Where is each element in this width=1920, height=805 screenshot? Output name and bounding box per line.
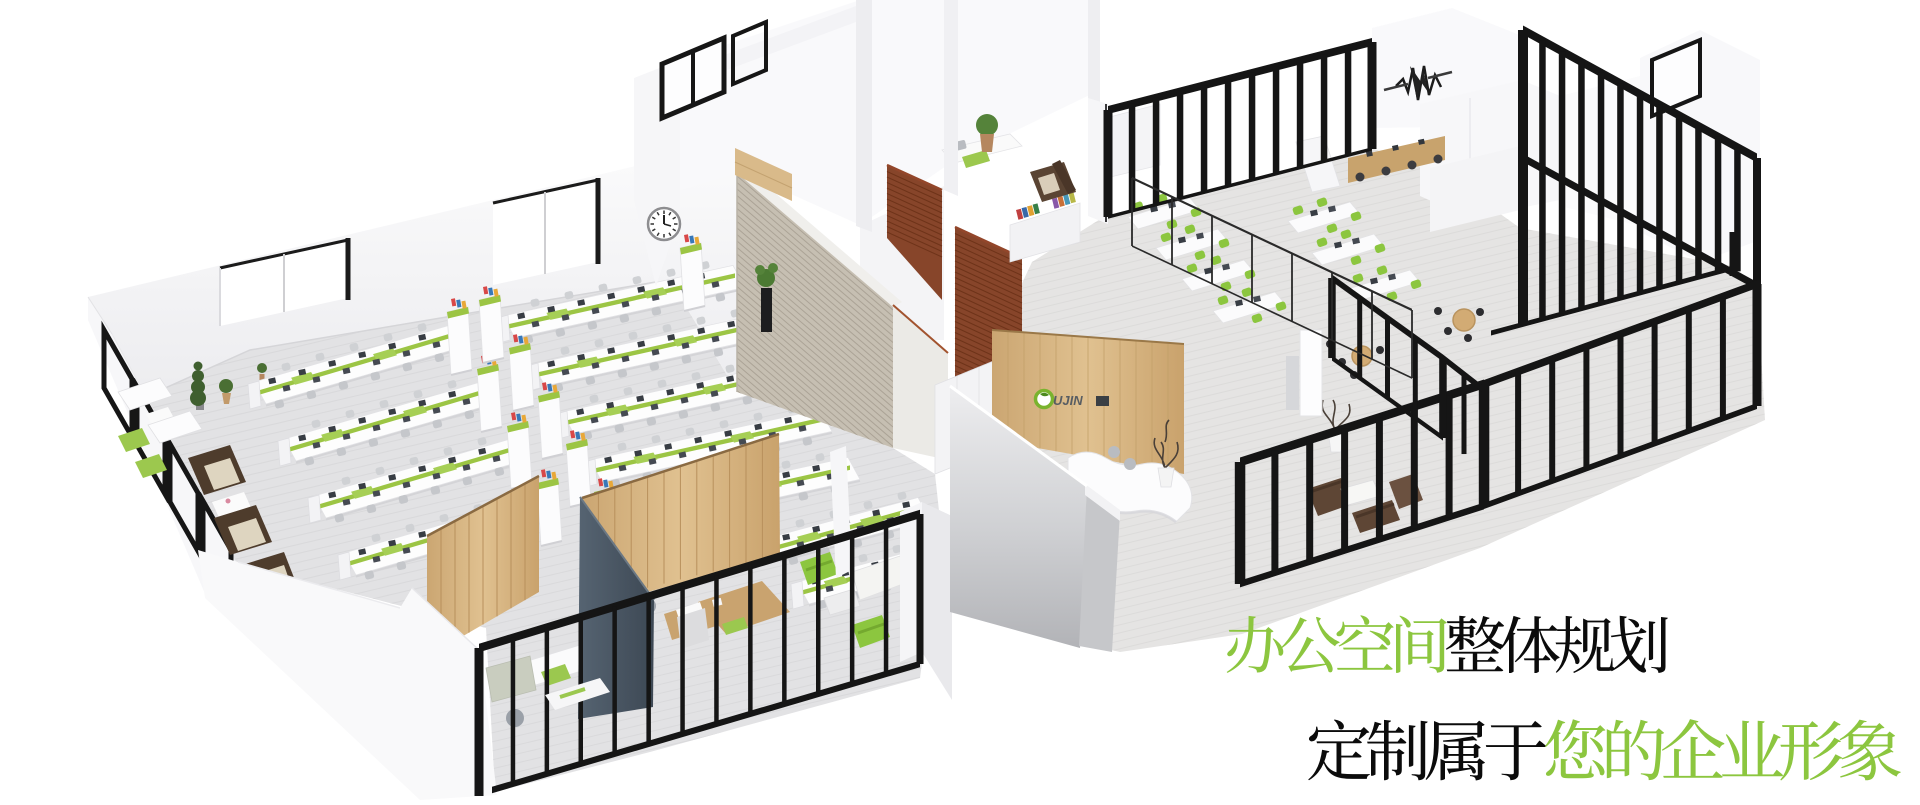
- svg-text:UJIN: UJIN: [1053, 393, 1083, 408]
